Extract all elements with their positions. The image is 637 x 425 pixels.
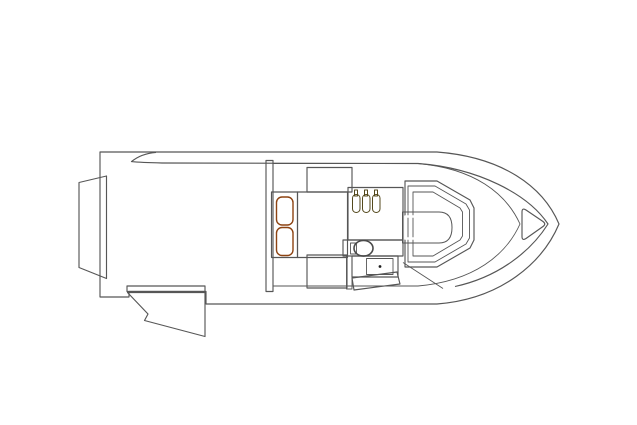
transom-door-open xyxy=(128,293,206,337)
boat-deck-plan xyxy=(0,0,637,425)
bottle-1 xyxy=(353,195,361,213)
bottle-2 xyxy=(363,195,371,213)
transom-step xyxy=(127,286,205,292)
helm-console-outer xyxy=(405,181,474,267)
lounge-seat xyxy=(298,192,348,258)
helm-dash-screen xyxy=(406,217,445,239)
seat-cushion-2 xyxy=(277,228,294,256)
galley-counter-upper xyxy=(348,188,403,241)
stove-knob xyxy=(379,265,382,268)
appliance-band xyxy=(352,256,398,277)
engine-pod xyxy=(79,176,107,279)
page-background xyxy=(0,0,637,425)
bottle-3 xyxy=(373,195,381,213)
bench-table xyxy=(307,255,347,288)
aft-table xyxy=(307,168,352,193)
bow-hatch xyxy=(522,209,545,239)
gunwale-line xyxy=(132,152,549,286)
helm-console-mid xyxy=(408,186,470,262)
cockpit-deck xyxy=(273,164,520,287)
hull xyxy=(100,152,559,304)
seat-cushion-1 xyxy=(277,197,294,225)
helm-console-panel xyxy=(413,192,463,256)
